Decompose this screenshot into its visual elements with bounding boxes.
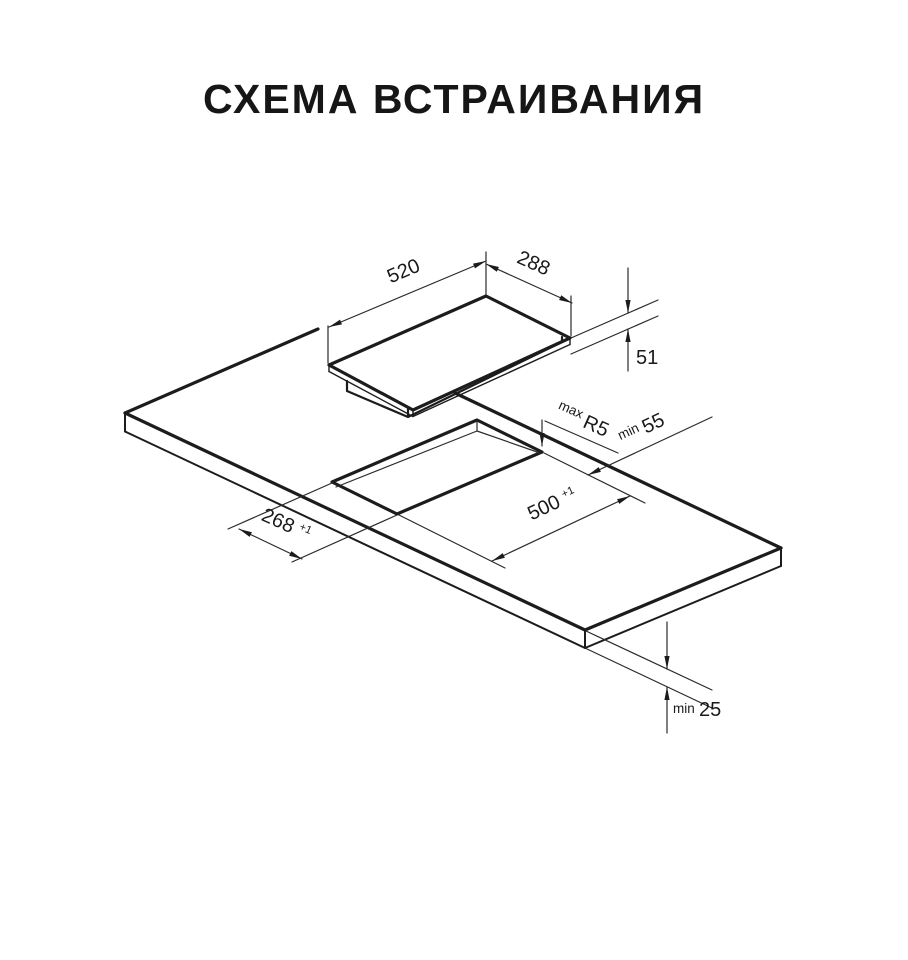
countertop-back-left-edge	[125, 329, 318, 413]
dim-min55-arrow	[588, 467, 601, 475]
dim-51-arrow-top	[625, 300, 630, 313]
dim-min25-prefix: min	[673, 701, 695, 716]
dim-500-extension-lines	[399, 453, 645, 568]
dim-268-arrow-right	[289, 551, 302, 559]
dim-min55-prefix: min	[615, 420, 641, 443]
installation-diagram: 520 288 51 max R5	[0, 0, 908, 960]
dim-r5-prefix: max	[556, 397, 586, 421]
countertop-corner-verticals	[125, 413, 781, 648]
dim-hob-height: 51	[571, 268, 658, 371]
dim-520-arrow-right	[473, 261, 486, 268]
dim-500-label: 500	[524, 491, 564, 525]
cutout-opening	[332, 420, 542, 514]
countertop-front-edges	[125, 413, 781, 630]
dim-min25-reference-lines	[586, 631, 712, 708]
dim-268-tolerance: +1	[297, 521, 313, 537]
dim-288-arrow-right	[559, 295, 572, 303]
dim-hob-depth: 288	[486, 247, 572, 336]
dim-268-arrow-left	[239, 529, 252, 537]
dim-288-label: 288	[514, 247, 553, 281]
dim-min25-label: 25	[699, 699, 721, 721]
dim-51-label: 51	[636, 347, 658, 369]
dim-500-tolerance: +1	[560, 484, 576, 500]
dim-500-arrow-right	[617, 496, 630, 504]
dim-r5-arrow	[539, 433, 544, 446]
dim-cutout-width: 268 +1	[228, 483, 397, 562]
dim-288-arrow-left	[486, 264, 499, 272]
countertop-bottom-edges	[125, 432, 781, 649]
dim-268-extension-lines	[228, 483, 397, 562]
dim-51-reference-lines	[571, 300, 658, 354]
dim-cutout-radius: max R5	[539, 397, 618, 453]
dim-cutout-length: 500 +1	[399, 453, 645, 568]
hob-panel	[329, 296, 570, 417]
installation-scheme-page: СХЕМА ВСТРАИВАНИЯ	[0, 0, 908, 960]
hob-top-face	[329, 296, 570, 410]
dim-500-arrow-left	[492, 553, 505, 561]
dim-520-arrow-left	[329, 320, 342, 327]
dim-min55-label: 55	[639, 409, 668, 438]
cutout-outline	[332, 420, 542, 514]
dim-min25-arrow-bottom	[664, 687, 669, 700]
hob-housing-box	[347, 337, 562, 417]
countertop-back-right-edge	[455, 393, 781, 548]
dim-r5-label: R5	[580, 411, 612, 442]
dim-520-label: 520	[384, 255, 423, 288]
dim-51-arrow-bottom	[625, 329, 630, 342]
dim-min25-arrow-top	[664, 656, 669, 669]
cutout-inner-walls	[336, 421, 540, 487]
